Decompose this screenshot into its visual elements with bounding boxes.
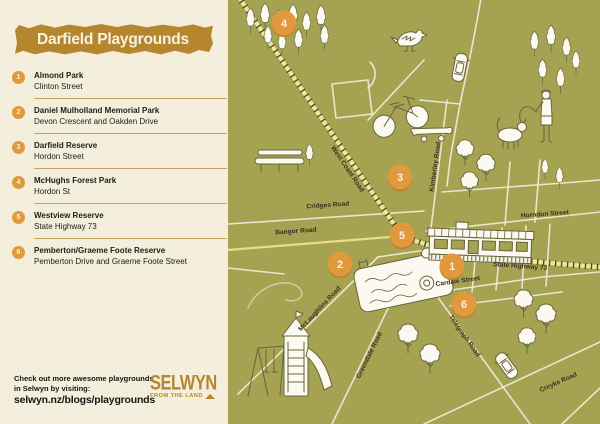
legend-number-badge: 4 xyxy=(12,176,25,189)
legend-number-badge: 2 xyxy=(12,106,25,119)
legend-item-almond-park: 1 Almond Park Clinton Street xyxy=(12,64,227,99)
legend-item-westview-reserve: 5 Westview Reserve State Highway 73 xyxy=(12,204,227,239)
playground-map: West Coast RoadCridges RoadBangor RoadKi… xyxy=(228,0,600,424)
playground-name: McHughs Forest Park xyxy=(34,175,227,186)
map-marker-number: 2 xyxy=(337,259,343,271)
playground-name: Almond Park xyxy=(34,70,227,81)
legend-item-darfield-reserve: 3 Darfield Reserve Hordon Street xyxy=(12,134,227,169)
selwyn-logo-name: SELWYN xyxy=(150,372,209,394)
map-marker-1: 1 xyxy=(440,254,465,281)
legend-item-pemberton-foote: 6 Pemberton/Graeme Foote Reserve Pembert… xyxy=(12,239,227,273)
legend-panel: Darfield Playgrounds 1 Almond Park Clint… xyxy=(0,0,228,424)
selwyn-logo: SELWYN FROM THE LAND xyxy=(150,372,222,399)
footer-note-line2: in Selwyn by visiting: xyxy=(14,384,154,394)
footer-url[interactable]: selwyn.nz/blogs/playgrounds xyxy=(14,394,155,406)
map-marker-4: 4 xyxy=(272,11,297,38)
legend-number-badge: 6 xyxy=(12,246,25,259)
playground-address: State Highway 73 xyxy=(34,221,227,232)
playground-address: Hordon Street xyxy=(34,151,227,162)
map-marker-3: 3 xyxy=(388,165,413,192)
page-title: Darfield Playgrounds xyxy=(13,23,213,56)
mountain-icon xyxy=(205,394,215,399)
playground-legend: 1 Almond Park Clinton Street 2 Daniel Mu… xyxy=(12,64,227,273)
map-marker-2: 2 xyxy=(328,252,353,279)
map-marker-number: 5 xyxy=(399,230,405,242)
playground-name: Daniel Mulholland Memorial Park xyxy=(34,105,227,116)
legend-number-badge: 3 xyxy=(12,141,25,154)
map-marker-6: 6 xyxy=(452,292,477,319)
legend-number-badge: 5 xyxy=(12,211,25,224)
map-canvas: West Coast RoadCridges RoadBangor RoadKi… xyxy=(228,0,600,424)
legend-item-daniel-mulholland: 2 Daniel Mulholland Memorial Park Devon … xyxy=(12,99,227,134)
footer-note: Check out more awesome playgrounds in Se… xyxy=(14,374,154,393)
legend-number-badge: 1 xyxy=(12,71,25,84)
playground-address: Clinton Street xyxy=(34,81,227,92)
playground-address: Hordon St xyxy=(34,186,227,197)
map-marker-number: 4 xyxy=(281,18,288,30)
map-marker-5: 5 xyxy=(390,223,415,250)
map-marker-number: 6 xyxy=(461,299,467,311)
playground-name: Darfield Reserve xyxy=(34,140,227,151)
playground-name: Westview Reserve xyxy=(34,210,227,221)
map-marker-number: 1 xyxy=(449,261,455,273)
playground-address: Pemberton Drive and Graeme Foote Street xyxy=(34,256,227,267)
legend-item-mchughs-forest: 4 McHughs Forest Park Hordon St xyxy=(12,169,227,204)
footer-note-line1: Check out more awesome playgrounds xyxy=(14,374,154,384)
playground-address: Devon Crescent and Oakden Drive xyxy=(34,116,227,127)
map-marker-number: 3 xyxy=(397,172,403,184)
playground-name: Pemberton/Graeme Foote Reserve xyxy=(34,245,227,256)
